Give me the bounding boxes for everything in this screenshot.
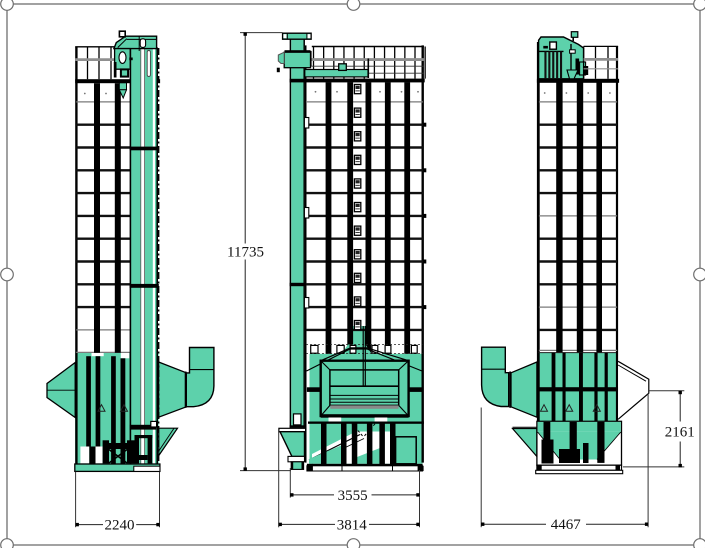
svg-text:4467: 4467 [551, 517, 582, 533]
svg-text:3814: 3814 [337, 517, 368, 533]
svg-text:2240: 2240 [105, 518, 135, 534]
svg-text:11735: 11735 [227, 244, 264, 260]
svg-text:2161: 2161 [665, 425, 695, 441]
svg-text:3555: 3555 [338, 488, 368, 504]
